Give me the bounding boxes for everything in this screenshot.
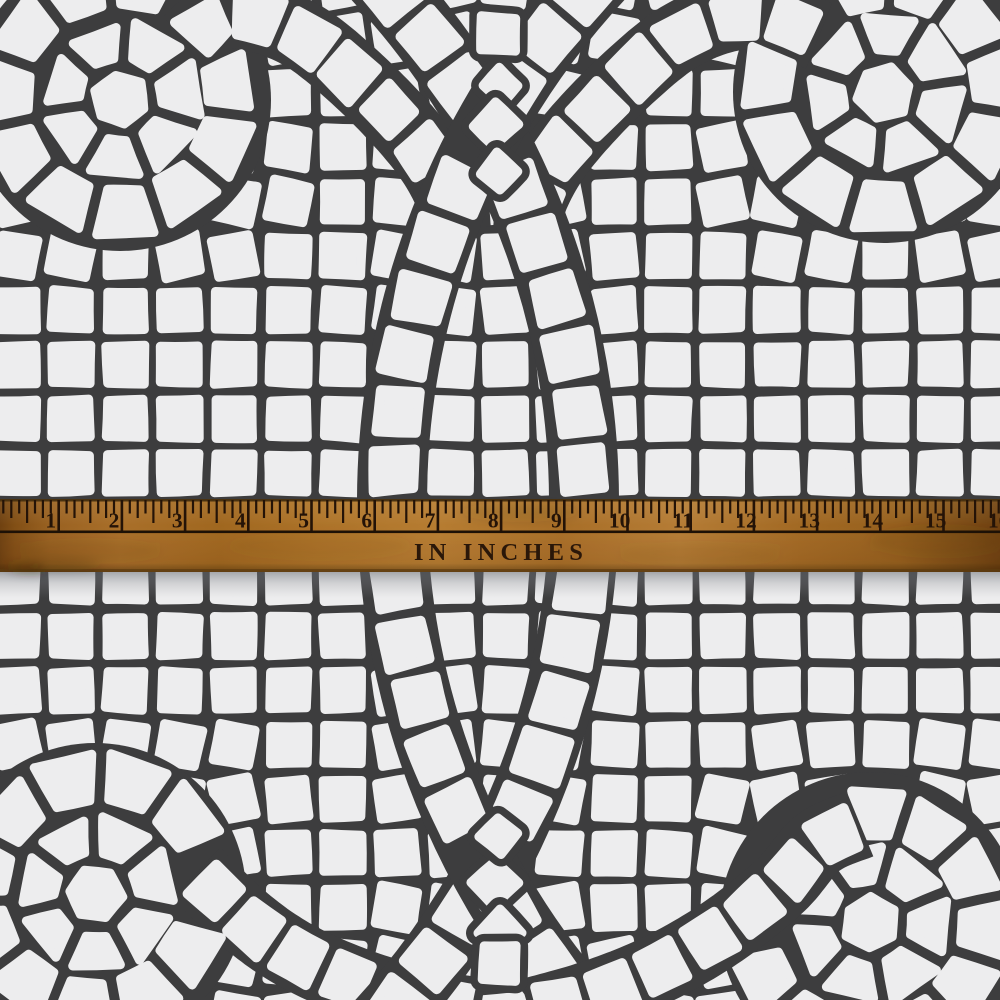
svg-text:7: 7 xyxy=(425,509,436,533)
svg-text:5: 5 xyxy=(298,509,309,533)
svg-text:3: 3 xyxy=(172,509,183,533)
svg-text:4: 4 xyxy=(235,509,246,533)
svg-text:9: 9 xyxy=(551,509,562,533)
svg-text:10: 10 xyxy=(609,509,631,533)
svg-text:6: 6 xyxy=(361,509,372,533)
svg-text:13: 13 xyxy=(798,509,820,533)
svg-text:12: 12 xyxy=(735,509,757,533)
svg-text:11: 11 xyxy=(673,509,693,533)
svg-text:14: 14 xyxy=(862,509,884,533)
svg-text:IN INCHES: IN INCHES xyxy=(414,539,588,566)
svg-text:15: 15 xyxy=(925,509,947,533)
svg-text:2: 2 xyxy=(109,509,120,533)
svg-text:8: 8 xyxy=(488,509,499,533)
svg-text:16: 16 xyxy=(988,509,1000,533)
svg-text:1: 1 xyxy=(45,509,56,533)
